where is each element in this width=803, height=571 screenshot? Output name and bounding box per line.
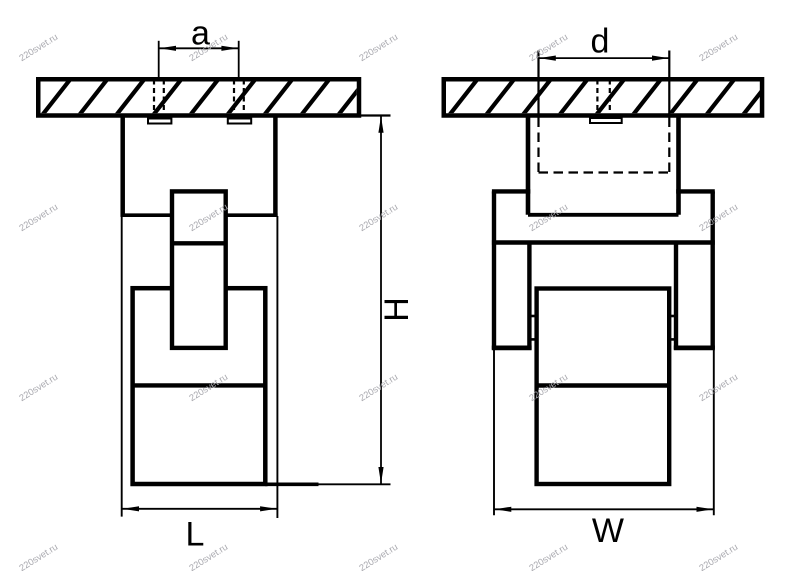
svg-text:d: d	[591, 23, 610, 61]
svg-text:W: W	[592, 512, 624, 550]
svg-text:H: H	[378, 297, 416, 322]
svg-text:L: L	[186, 515, 205, 553]
